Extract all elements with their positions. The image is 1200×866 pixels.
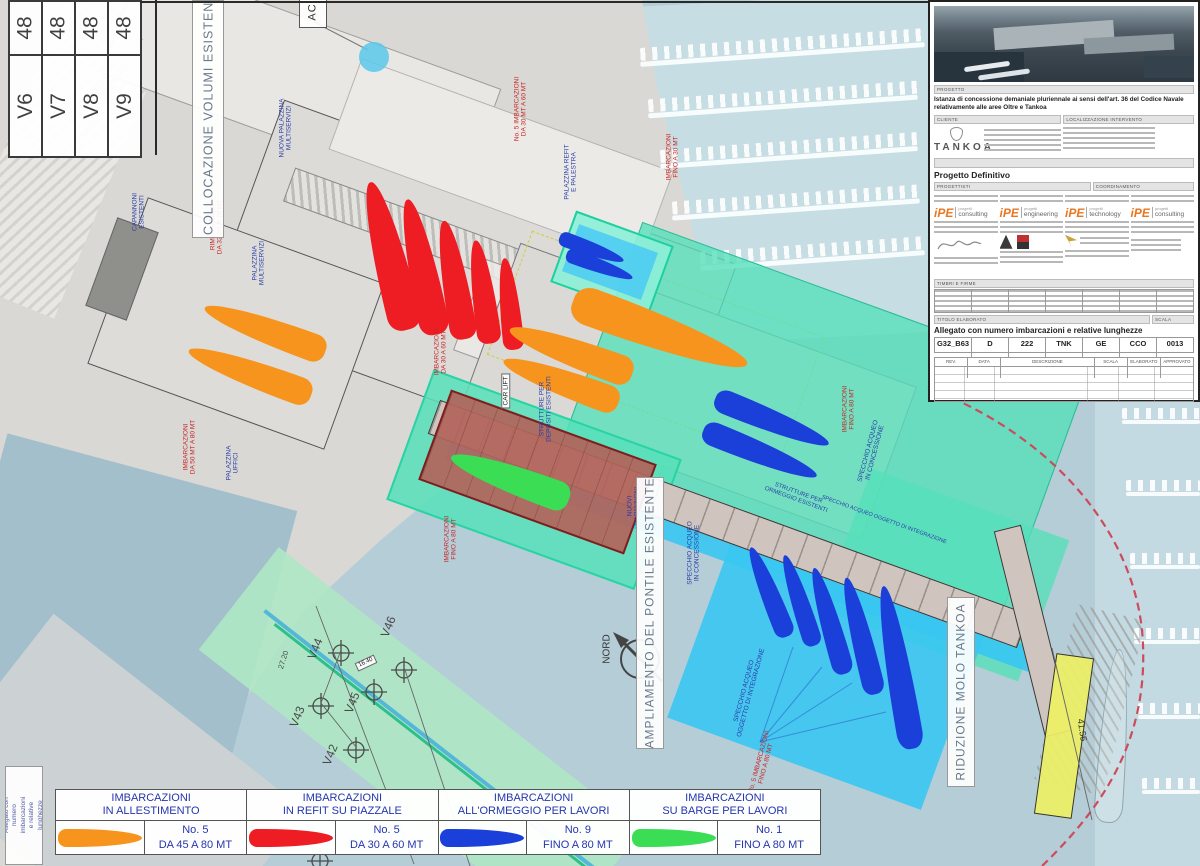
cliente-header: CLIENTE [934,115,1061,124]
revision-header-row: REV. DATA DESCRIZIONE SCALA ELABORATO AP… [934,357,1194,367]
legend-item-refit: IMBARCAZIONI IN REFIT SU PIAZZALE No. 5 … [247,790,438,854]
legend-title-line1: IMBARCAZIONI [111,792,190,805]
render-photo [934,6,1194,82]
legend-title-line2: SU BARGE PER LAVORI [662,805,787,818]
text-placeholder [1065,195,1129,205]
legend-size: FINO A 80 MT [734,838,804,852]
volume-value: 48 [43,2,76,54]
legend-count: No. 5 [182,823,208,837]
code-commessa: G32_B63 [935,338,972,358]
dock [1130,565,1200,569]
legend-count: No. 1 [756,823,782,837]
stamp-cell [1120,290,1157,312]
code-numero: 222 [1009,338,1046,358]
ipe-logo: iPE [1000,207,1019,219]
volume-ids-row: V6 V7 V8 V9 [10,56,140,156]
signature-logo [934,235,984,255]
stamp-cell [1009,290,1046,312]
text-placeholder [1131,239,1182,253]
dock-boats [1142,778,1200,789]
ipe-logo: iPE [1131,207,1150,219]
photo-shed-roof [1084,34,1175,55]
legend-value-cell: No. 5 DA 30 A 60 MT [336,821,438,854]
consultant-logo-pair [1000,235,1064,279]
ipe-logo: iPE [1065,207,1084,219]
volume-value: 48 [76,2,109,54]
gold-emblem-icon [1065,235,1077,247]
localizzazione-header: LOCALIZZAZIONE INTERVENTO [1063,115,1194,124]
imbarcazioni-50-80-label: IMBARCAZIONI DA 50 MT A 80 MT [183,420,198,474]
text-placeholder [1131,195,1195,205]
code-fase: D [972,338,1009,358]
ipe-word: progettitechnology [1086,207,1120,219]
imbarcazioni-fino-80-right-label: IMBARCAZIONI FINO A 80 MT [842,386,857,433]
volume-values-row: 48 48 48 48 [10,2,140,56]
blue-boat-icon [440,829,524,847]
imbarcazioni-fino-30-label: IMBARCAZIONI FINO A 30 MT [666,134,681,181]
text-placeholder [1131,221,1195,233]
ipe-col-engineering: iPE progettiengineering [1000,193,1064,233]
code-strip: G32_B63 D 222 TNK GE CCO 0013 [934,337,1194,353]
legend: IMBARCAZIONI IN ALLESTIMENTO No. 5 DA 45… [55,789,821,855]
fase-text: Progetto Definitivo [934,170,1194,180]
consultant-logo-script [934,235,998,279]
stamp-cell [935,290,972,312]
legend-title-line2: IN REFIT SU PIAZZALE [283,805,402,818]
legend-value-cell: No. 9 FINO A 80 MT [527,821,629,854]
legend-count: No. 5 [373,823,399,837]
dock [1122,420,1200,424]
consultant-col-empty [1131,235,1195,279]
legend-icon-cell [56,821,145,854]
imbarcazioni-30-60-label: IMBARCAZIONI DA 30 A 60 MT [434,329,449,376]
volume-id: V9 [109,56,140,156]
scala-header: SCALA [1152,315,1194,324]
code-sede: GE [1083,338,1120,358]
text-placeholder [934,195,998,205]
rev-header: ELABORATO [1128,358,1161,378]
text-placeholder [1000,251,1064,263]
legend-size: DA 45 A 80 MT [159,838,232,852]
ampliamento-text: AMPLIAMENTO DEL PONTILE ESISTENTE [643,477,657,748]
code-elaborato: 0013 [1157,338,1193,358]
legend-title: IMBARCAZIONI IN ALLESTIMENTO [56,790,246,821]
ipe-word: progettiengineering [1021,207,1058,219]
car-lift-label: CAR LIFT [501,374,510,409]
ipe-col-technology: iPE progettitechnology [1065,193,1129,233]
text-placeholder [1000,221,1064,233]
ipe-columns: iPE progetticonsulting iPE progettiengin… [934,193,1194,233]
capannoni-label: CAPANNONI ESISTENTI [132,193,147,231]
riduzione-text: RIDUZIONE MOLO TANKOA [954,603,968,780]
consultant-logos-row [934,235,1194,279]
localizzazione-section: LOCALIZZAZIONE INTERVENTO [1063,115,1194,156]
cliente-address-placeholder [984,129,1062,151]
consultant-logo-gold [1065,235,1129,279]
progettisti-header: PROGETTISTI [934,182,1091,191]
dock-boats [1134,628,1200,639]
cliente-section: CLIENTE TANKOA [934,115,1061,156]
ampliamento-label-box: AMPLIAMENTO DEL PONTILE ESISTENTE [636,477,664,749]
dark-emblem-icon [1000,235,1013,249]
dock-boats [1130,553,1200,564]
legend-title: IMBARCAZIONI SU BARGE PER LAVORI [630,790,820,821]
ipe-logo: iPE [934,207,953,219]
red-boat-icon [249,829,333,847]
volume-id: V8 [76,56,109,156]
sheet-frame-top [140,1,930,3]
legend-count: No. 9 [565,823,591,837]
dock-boats [1126,480,1200,491]
sheet-frame-left [155,0,157,155]
dock [1126,492,1200,496]
stamp-cell [1046,290,1083,312]
fase-header-placeholder [934,158,1194,168]
legend-icon-cell [439,821,528,854]
stamp-cells [934,289,1194,313]
specchio-concessione-left-label: SPECCHIO ACQUEO IN CONCESSIONE [687,521,702,585]
nuova-palazzina-label: NUOVA PALAZZINA MULTISERVIZI [279,99,294,158]
dock [1142,790,1200,794]
palazzina-multiservizi-label: PALAZZINA MULTISERVIZI [252,241,267,285]
photo-water-right [1144,56,1194,78]
shield-emblem-icon [1017,235,1029,249]
legend-item-ormeggio: IMBARCAZIONI ALL'ORMEGGIO PER LAVORI No.… [439,790,630,854]
volume-table: 48 48 48 48 V6 V7 V8 V9 [8,0,142,158]
stamp-cell [1083,290,1120,312]
volume-id: V7 [43,56,76,156]
titolo-text: Allegato con numero imbarcazioni e relat… [934,326,1194,335]
rev-header: SCALA [1095,358,1128,378]
side-note-box: Allegato con numero imbarcazioni e relat… [5,766,43,865]
legend-title-line1: IMBARCAZIONI [494,792,573,805]
strutture-depositi-label: STRUTTURE PER DEPOSITI ESISTENTI [539,376,554,442]
volume-id: V6 [10,56,43,156]
rev-header: DATA [968,358,1001,378]
dock [1134,640,1200,644]
legend-title-line2: IN ALLESTIMENTO [103,805,200,818]
text-placeholder [934,221,998,233]
dock [1138,715,1200,719]
ricollocazione-label-box: RICOLLOCAZIONE VOLUMI ESISTENTI [192,0,224,238]
green-boat-icon [632,829,716,847]
riduzione-label-box: RIDUZIONE MOLO TANKOA [947,597,975,787]
volume-value: 48 [10,2,43,54]
legend-title: IMBARCAZIONI ALL'ORMEGGIO PER LAVORI [439,790,629,821]
side-note-text: Allegato con numero imbarcazioni e relat… [5,797,43,834]
text-placeholder [1000,195,1064,205]
legend-item-allestimento: IMBARCAZIONI IN ALLESTIMENTO No. 5 DA 45… [56,790,247,854]
legend-item-barge: IMBARCAZIONI SU BARGE PER LAVORI No. 1 F… [630,790,820,854]
title-block: PROGETTO Istanza di concessione demanial… [928,0,1200,402]
legend-icon-cell [247,821,336,854]
text-placeholder [1080,237,1129,245]
ricollocazione-text: RICOLLOCAZIONE VOLUMI ESISTENTI [201,0,215,238]
code-cliente: TNK [1046,338,1083,358]
text-placeholder [1065,250,1129,260]
localizzazione-text-placeholder [1063,127,1154,151]
ipe-word: progetticonsulting [955,207,987,219]
legend-title: IMBARCAZIONI IN REFIT SU PIAZZALE [247,790,437,821]
rev-header: APPROVATO [1161,358,1193,378]
rev-header: REV. [935,358,968,378]
legend-size: DA 30 A 60 MT [350,838,423,852]
legend-icon-cell [630,821,719,854]
stamp-cell [1157,290,1193,312]
volume-value: 48 [109,2,140,54]
site-plan-canvas: FERROVIA GENOVA VENTIMIGLIA CAPANNONI ES… [0,0,1200,866]
rev-header: DESCRIZIONE [1001,358,1094,378]
marker-v46: V46 [379,615,400,640]
code-tipologia: CCO [1120,338,1157,358]
legend-size: FINO A 80 MT [543,838,613,852]
accesso-text: AC [307,3,319,20]
palazzina-uffici-label: PALAZZINA UFFICI [226,446,241,481]
orange-boat-icon [58,829,142,847]
legend-value-cell: No. 5 DA 45 A 80 MT [145,821,247,854]
progetto-description: Istanza di concessione demaniale plurien… [934,96,1194,112]
ipe-word: progetticonsulting [1152,207,1184,219]
tankoa-shield-icon [950,127,963,141]
imbarcazioni-fino-80-label: IMBARCAZIONI FINO A 80 MT [444,516,459,563]
ipe-col-consulting2: iPE progetticonsulting [1131,193,1195,233]
text-placeholder [934,257,998,267]
no5-30-60-label: No. 5 IMBARCAZIONI DA 30 MT A 60 MT [514,77,529,141]
titolo-header: TITOLO ELABORATO [934,315,1150,324]
coordinamento-header: COORDINAMENTO [1093,182,1194,191]
legend-title-line1: IMBARCAZIONI [303,792,382,805]
legend-value-cell: No. 1 FINO A 80 MT [718,821,820,854]
legend-title-line1: IMBARCAZIONI [685,792,764,805]
dock-boats [1138,703,1200,714]
text-placeholder [1065,221,1129,233]
palazzina-refit-label: PALAZZINA REFIT E PALESTRA [564,144,579,199]
dock-boats [1122,408,1200,419]
timbri-header: TIMBRI E FIRME [934,279,1194,288]
nord-label: NORD [601,634,613,663]
stamp-cell [972,290,1009,312]
accesso-label-box: AC [299,0,327,28]
ipe-col-consulting: iPE progetticonsulting [934,193,998,233]
progetto-header: PROGETTO [934,85,1194,94]
legend-title-line2: ALL'ORMEGGIO PER LAVORI [458,805,610,818]
